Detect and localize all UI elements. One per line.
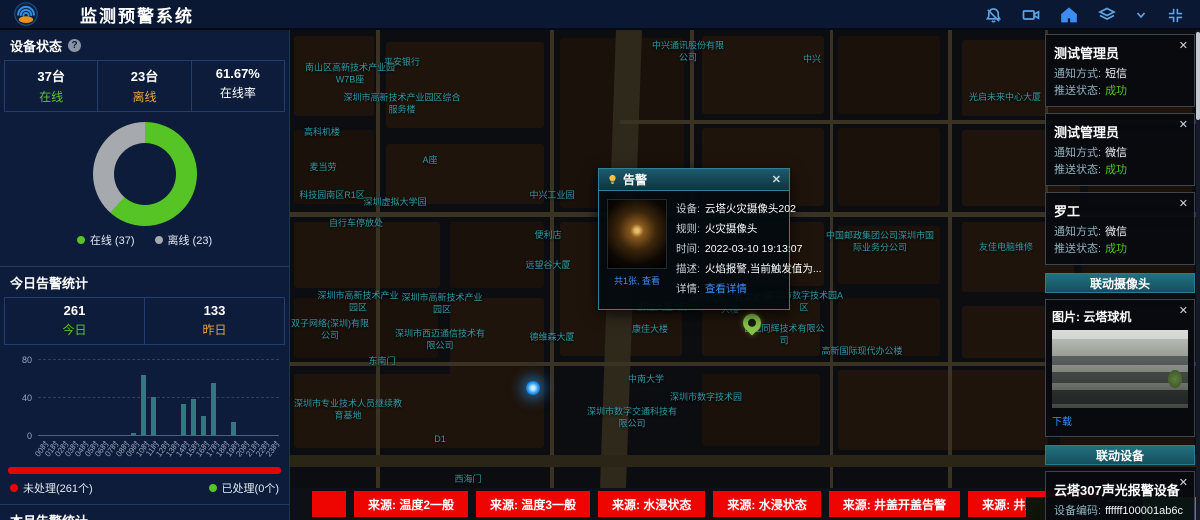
bar-column: 23时 (269, 359, 279, 435)
map-label: 中兴通讯股份有限公司 (652, 40, 724, 63)
device-status-title: 设备状态 (10, 36, 62, 55)
bar (181, 404, 186, 435)
today-alarm-stats: 261今日 133昨日 (4, 297, 285, 345)
notification-title: 罗工 (1054, 201, 1186, 220)
map-road (550, 30, 554, 488)
map-road (830, 30, 833, 488)
bar-column: 12时 (159, 359, 169, 435)
bar-column: 10时 (138, 359, 148, 435)
process-legend: 未处理(261个) 已处理(0个) (10, 480, 279, 496)
map-label: 远望谷大厦 (525, 260, 570, 272)
month-alarm-header: 本月告警统计 (0, 505, 289, 520)
legend-online-label: 在线 (37) (90, 232, 135, 248)
bar-column: 07时 (108, 359, 118, 435)
chevron-down-icon[interactable] (1136, 6, 1146, 24)
bar-column: 18时 (219, 359, 229, 435)
left-stats-panel: 设备状态 ? 37台在线 23台离线 61.67%在线率 在线 (37) 离线 … (0, 30, 290, 520)
snapshot-view-link[interactable]: 共1张, 查看 (607, 274, 667, 287)
alarm-bulb-icon (607, 174, 618, 185)
map-label: 便利店 (534, 230, 561, 242)
bar-column: 11时 (149, 359, 159, 435)
map-block (838, 370, 1048, 450)
today-alarm-header: 今日告警统计 (0, 267, 289, 295)
device-status-stats: 37台在线 23台离线 61.67%在线率 (4, 60, 285, 112)
map-label: 中兴 (803, 54, 821, 66)
popup-row-value: 2022-03-10 19:13:07 (705, 239, 803, 259)
x-axis-line: 0 (38, 435, 279, 436)
stat-online: 37台在线 (5, 61, 97, 111)
notification-card: ✕ 罗工 通知方式:微信 推送状态:成功 (1045, 192, 1195, 265)
linked-device-header: 联动设备 (1045, 445, 1195, 465)
map-label: 深圳市高新技术产业园区 (399, 292, 485, 315)
bar-column: 20时 (239, 359, 249, 435)
map-label: 西海门 (454, 474, 481, 486)
map-block (294, 222, 440, 288)
bar-column: 05时 (88, 359, 98, 435)
map-label: 中国邮政集团公司深圳市国际业务分公司 (824, 230, 936, 253)
bar (211, 383, 216, 435)
map-label: 深圳市数字交通科技有限公司 (584, 406, 680, 429)
popup-row-label: 时间: (676, 239, 700, 259)
bar (191, 399, 196, 435)
map-block (386, 144, 544, 204)
legend-dot-online (77, 236, 85, 244)
alarm-popup: 告警 ✕ 共1张, 查看 设备:云塔火灾摄像头202 规则:火灾摄像头 时间:2… (598, 168, 790, 310)
collapse-icon[interactable] (1166, 6, 1184, 24)
app-title: 监测预警系统 (80, 2, 194, 27)
bar-column: 19时 (229, 359, 239, 435)
alarm-ticker-item[interactable]: 来源: 水浸状态 (598, 491, 705, 517)
popup-row-label: 设备: (676, 199, 700, 219)
map-label: 自行车停放处 (329, 218, 383, 230)
popup-row-value: 云塔火灾摄像头202 (705, 199, 796, 219)
popup-row-label: 详情: (676, 279, 700, 299)
bar-column: 15时 (189, 359, 199, 435)
bar (131, 433, 136, 435)
scrollbar-thumb[interactable] (1196, 32, 1200, 120)
map-label: 深圳市高新技术产业园区综合服务楼 (343, 92, 461, 115)
app-header: 监测预警系统 (0, 0, 1200, 30)
linked-device-card: ✕ 云塔307声光报警设备 设备编码:ffffff100001ab6c 调用服务… (1045, 471, 1195, 520)
map-label: 麦当劳 (309, 162, 336, 174)
bar-column: 09时 (128, 359, 138, 435)
layers-icon[interactable] (1098, 6, 1116, 24)
bar-column: 17时 (209, 359, 219, 435)
view-details-link[interactable]: 查看详情 (705, 279, 747, 299)
right-notification-panel: ✕ 测试管理员 通知方式:短信 推送状态:成功 ✕ 测试管理员 通知方式:微信 … (1045, 30, 1195, 520)
map-label: 高新国际现代办公楼 (821, 346, 902, 358)
bar-column: 00时 (38, 359, 48, 435)
map-label: 友佳电脑维修 (979, 242, 1033, 254)
map-label: 东南门 (368, 356, 395, 368)
alarm-ticker-item[interactable] (312, 491, 346, 517)
bar (141, 375, 146, 435)
bell-off-icon[interactable] (984, 6, 1002, 24)
notification-card: ✕ 测试管理员 通知方式:微信 推送状态:成功 (1045, 113, 1195, 186)
close-icon[interactable]: ✕ (1179, 304, 1188, 317)
bar-column: 21时 (249, 359, 259, 435)
close-icon[interactable]: ✕ (1179, 476, 1188, 489)
today-alarm-section: 今日告警统计 261今日 133昨日 80 40 0 00时01时02时03时0… (0, 266, 289, 496)
linked-camera-card: ✕ 图片: 云塔球机 下载 (1045, 299, 1195, 437)
download-link[interactable]: 下载 (1052, 417, 1072, 428)
popup-row-label: 规则: (676, 219, 700, 239)
map-label: 康佳大楼 (632, 324, 668, 336)
home-icon[interactable] (1060, 6, 1078, 24)
app-logo (14, 2, 38, 26)
video-camera-icon[interactable] (1022, 6, 1040, 24)
notification-title: 测试管理员 (1054, 122, 1186, 141)
map-block (450, 222, 544, 288)
map-label: 中兴工业园 (529, 190, 574, 202)
popup-row-value: 火焰报警,当前触发值为... (705, 259, 822, 279)
map-label: 光启未来中心大厦 (969, 92, 1041, 104)
donut-hole (114, 143, 176, 205)
map-label: 深圳市西迈通信技术有限公司 (392, 328, 488, 351)
fire-snapshot-image (607, 199, 667, 269)
stat-offline: 23台离线 (97, 61, 190, 111)
monitoring-dashboard: 中兴通讯股份有限公司中兴光启未来中心大厦平安银行南山区高新技术产业园W7B座深圳… (0, 0, 1200, 520)
map-label: 中南大学 (628, 374, 664, 386)
unprocessed-label: 未处理(261个) (23, 480, 93, 496)
bar-column: 01时 (48, 359, 58, 435)
bar-column: 08时 (118, 359, 128, 435)
bar-column: 14时 (179, 359, 189, 435)
unprocessed-progress-bar (8, 467, 281, 474)
help-icon[interactable]: ? (68, 39, 81, 52)
map-label: 科技园南区R1区 (299, 190, 365, 202)
camera-image-title: 图片: 云塔球机 (1052, 308, 1188, 325)
right-scrollbar (1196, 30, 1200, 520)
bar-column: 03时 (68, 359, 78, 435)
bar-column: 06时 (98, 359, 108, 435)
map-block (702, 374, 820, 446)
device-status-header: 设备状态 ? (0, 30, 289, 58)
alarm-location-marker[interactable] (526, 381, 540, 395)
notification-title: 测试管理员 (1054, 43, 1186, 62)
popup-title: 告警 (623, 171, 647, 188)
processed-label: 已处理(0个) (222, 480, 279, 496)
today-alarm-bar-chart: 80 40 0 00时01时02时03时04时05时06时07时08时09时10… (38, 359, 279, 435)
stat-today: 261今日 (5, 298, 144, 344)
bar-column: 13时 (169, 359, 179, 435)
map-label: 南山区高新技术产业园W7B座 (302, 62, 398, 85)
legend-offline-label: 离线 (23) (168, 232, 213, 248)
map-label: 双子网络(深圳)有限公司 (290, 318, 373, 341)
map-road (948, 30, 952, 488)
alarm-ticker-item[interactable]: 来源: 井盖开盖告警 (829, 491, 960, 517)
map-label: 高科机楼 (304, 127, 340, 139)
map-label: 德维森大厦 (529, 332, 574, 344)
map-label: 深圳市数字技术园 (670, 392, 742, 404)
map-label: 深圳市专业技术人员继续教育基地 (292, 398, 404, 421)
bar (201, 416, 206, 435)
popup-row-label: 描述: (676, 259, 700, 279)
alarm-ticker-item[interactable]: 来源: 温度3一般 (476, 491, 590, 517)
legend-dot-offline (155, 236, 163, 244)
popup-close-icon[interactable]: ✕ (772, 173, 781, 186)
legend-dot-unprocessed (10, 484, 18, 492)
map-label: 深圳市高新技术产业园区 (315, 290, 401, 313)
bar-column: 02时 (58, 359, 68, 435)
month-alarm-section: 本月告警统计 763 1146 (0, 504, 289, 520)
map-block (838, 128, 940, 206)
bar (151, 397, 156, 435)
map-block (838, 36, 940, 114)
popup-row-value: 火灾摄像头 (705, 219, 758, 239)
linked-camera-header: 联动摄像头 (1045, 273, 1195, 293)
stat-yesterday: 133昨日 (144, 298, 284, 344)
legend-dot-processed (209, 484, 217, 492)
alarm-ticker-item[interactable]: 来源: 温度2一般 (354, 491, 468, 517)
camera-photo (1052, 330, 1188, 408)
bar (231, 422, 236, 435)
bar-column: 16时 (199, 359, 209, 435)
notification-card: ✕ 测试管理员 通知方式:短信 推送状态:成功 (1045, 34, 1195, 107)
close-icon[interactable]: ✕ (1179, 197, 1188, 210)
close-icon[interactable]: ✕ (1179, 118, 1188, 131)
stat-online-rate: 61.67%在线率 (191, 61, 284, 111)
map-label: 深圳虚拟大学园 (363, 197, 426, 209)
device-donut-chart (93, 122, 197, 226)
close-icon[interactable]: ✕ (1179, 39, 1188, 52)
bar-column: 22时 (259, 359, 269, 435)
map-label: A座 (422, 155, 437, 167)
device-title: 云塔307声光报警设备 (1054, 480, 1186, 499)
map-label: D1 (434, 434, 446, 446)
alarm-ticker-item[interactable]: 来源: 水浸状态 (713, 491, 820, 517)
donut-legend: 在线 (37) 离线 (23) (0, 232, 289, 248)
bar-column: 04时 (78, 359, 88, 435)
